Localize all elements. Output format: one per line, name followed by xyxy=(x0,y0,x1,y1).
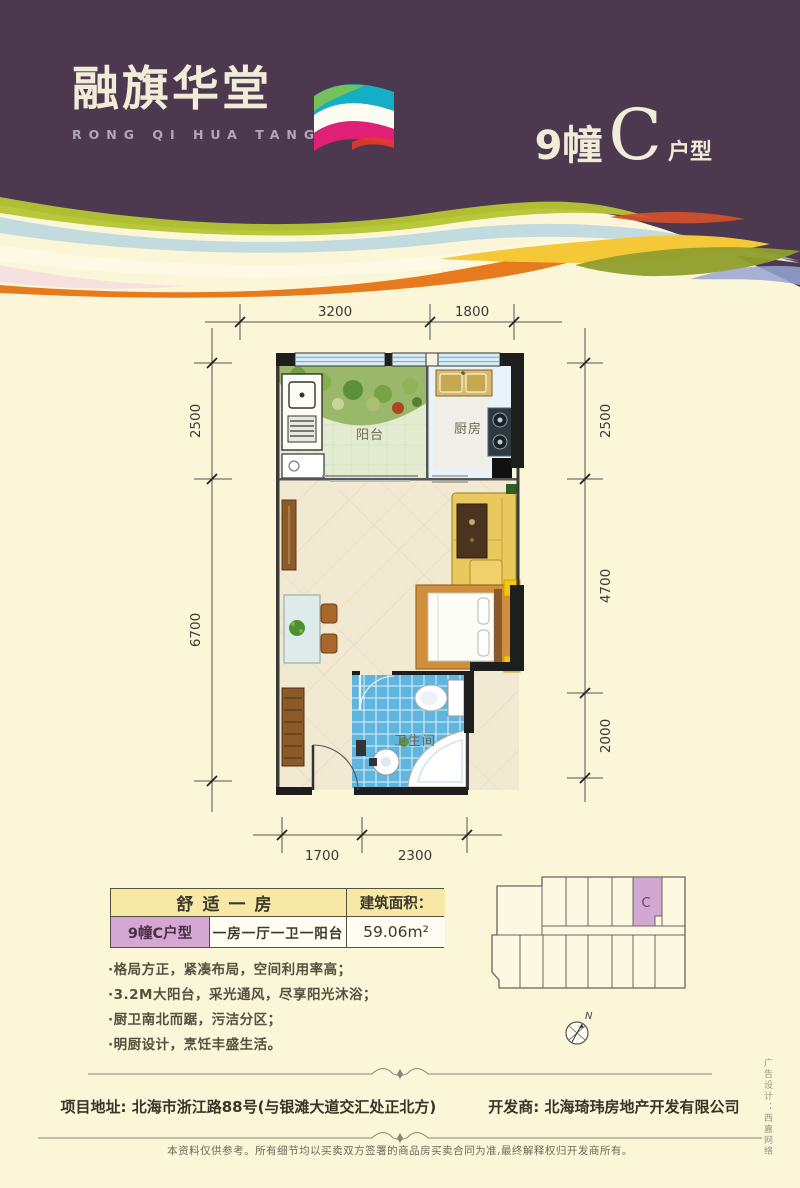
compass-north-label: N xyxy=(585,1011,593,1022)
washing-machine xyxy=(282,454,324,478)
project-info-row: 项目地址: 北海市浙江路88号(与银滩大道交汇处正北方) 开发商: 北海琦玮房地… xyxy=(0,1096,800,1117)
shoe-cabinet xyxy=(282,688,304,766)
area-value-cell: 59.06m² xyxy=(347,917,445,947)
bathroom xyxy=(352,675,466,788)
layout-cell: 一房一厅一卫一阳台 xyxy=(210,917,346,947)
developer-name: 开发商: 北海琦玮房地产开发有限公司 xyxy=(488,1096,739,1117)
info-headline: 舒适一房 xyxy=(111,889,346,916)
bathroom-label: 卫生间 xyxy=(394,734,436,749)
dim-bottom-2: 2300 xyxy=(398,848,432,864)
balcony-sink-unit xyxy=(282,374,322,450)
kitchen-cabinet xyxy=(492,458,512,478)
building-keyplan: C N xyxy=(485,868,700,1068)
keyplan-unit-label: C xyxy=(641,896,650,911)
dim-left-2: 6700 xyxy=(188,613,204,647)
project-address: 项目地址: 北海市浙江路88号(与银滩大道交汇处正北方) xyxy=(60,1096,436,1117)
feature-list: ·格局方正，紧凑布局，空间利用率高； ·3.2M大阳台，采光通风，尽享阳光沐浴；… xyxy=(108,958,468,1058)
compass-icon: N xyxy=(566,1011,593,1044)
feature-item: ·格局方正，紧凑布局，空间利用率高； xyxy=(108,958,468,983)
feature-item: ·3.2M大阳台，采光通风，尽享阳光沐浴； xyxy=(108,983,468,1008)
unit-letter: C xyxy=(608,104,662,167)
ornament-divider xyxy=(0,1067,800,1081)
dim-right-3: 2000 xyxy=(598,719,614,753)
dim-right-1: 2500 xyxy=(598,404,614,438)
kitchen-label: 厨房 xyxy=(454,421,482,437)
dim-right-2: 4700 xyxy=(598,569,614,603)
tv-cabinet xyxy=(282,500,296,570)
info-table: 舒适一房 建筑面积： 9幢C户型 一房一厅一卫一阳台 59.06m² xyxy=(110,888,444,948)
dim-bottom-1: 1700 xyxy=(305,848,339,864)
area-label: 建筑面积： xyxy=(347,889,445,916)
balcony-label: 阳台 xyxy=(356,428,384,443)
building-number: 9幢 xyxy=(535,113,603,171)
header-banner: 融旗华堂 RONG QI HUA TANG 9幢 C 户型 xyxy=(0,0,800,312)
dim-top-2: 1800 xyxy=(455,304,489,320)
floorplan: 阳台 厨房 卫生间 3200 1800 2500 6700 2500 4700 … xyxy=(170,290,640,870)
kitchen-sink xyxy=(436,370,492,396)
design-credit: 广告设计：西嘉网络 xyxy=(761,1058,774,1157)
dim-top-1: 3200 xyxy=(318,304,352,320)
bed xyxy=(416,580,520,672)
disclaimer-text: 本资料仅供参考。所有细节均以买卖双方签署的商品房买卖合同为准,最终解释权归开发商… xyxy=(0,1143,800,1158)
sofa xyxy=(452,484,518,587)
unit-name-cell: 9幢C户型 xyxy=(111,917,209,947)
unit-title: 9幢 C 户型 xyxy=(0,104,712,171)
feature-item: ·厨卫南北而踞，污洁分区； xyxy=(108,1008,468,1033)
kitchen-stove xyxy=(488,408,512,456)
dim-left-1: 2500 xyxy=(188,404,204,438)
poster-page: 融旗华堂 RONG QI HUA TANG 9幢 C 户型 xyxy=(0,0,800,1188)
unit-type-suffix: 户型 xyxy=(668,134,712,166)
feature-item: ·明厨设计，烹饪丰盛生活。 xyxy=(108,1033,468,1058)
